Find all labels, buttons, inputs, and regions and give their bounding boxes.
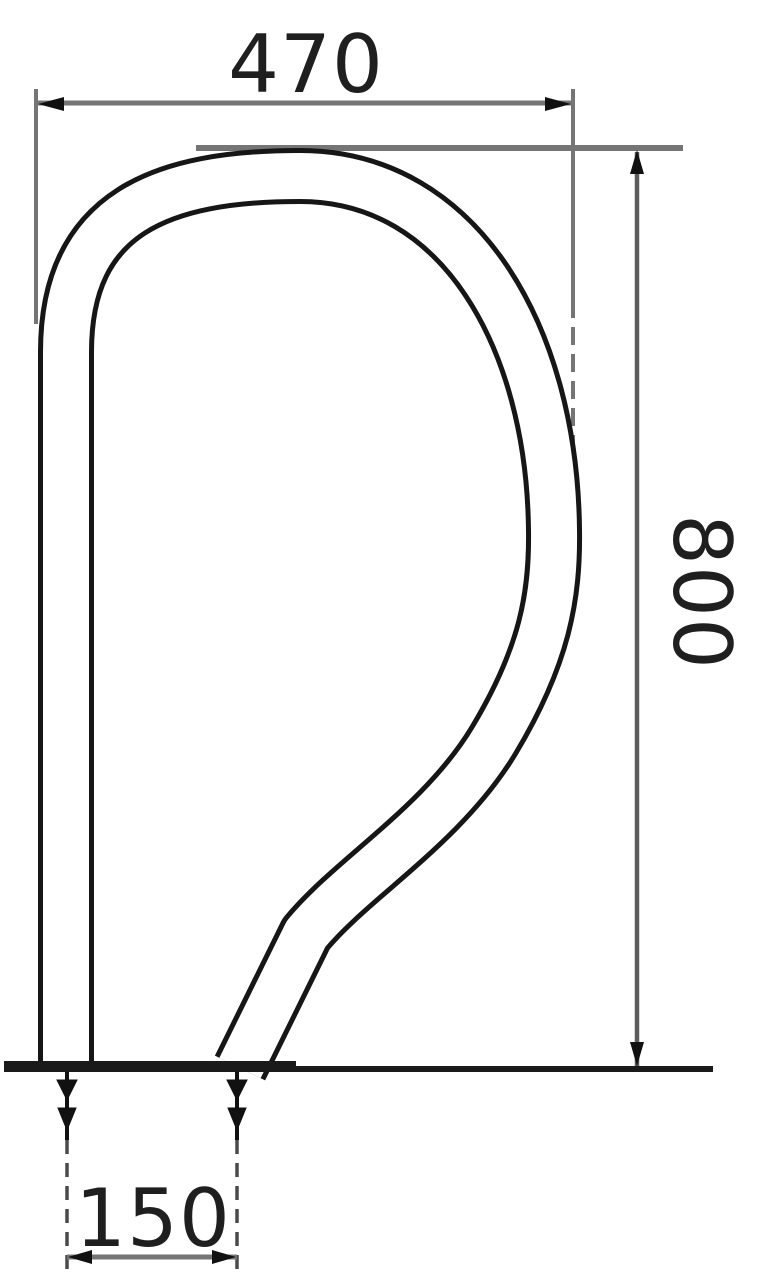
rail-tube <box>66 176 554 1068</box>
width-arrow-left-icon <box>38 97 64 111</box>
anchor-arrow-left-icon <box>57 1072 77 1140</box>
dimension-layer <box>36 89 683 1272</box>
rail-tube-core <box>66 176 554 1068</box>
width-arrow-right-icon <box>545 97 571 111</box>
height-arrow-bottom-icon <box>630 1042 644 1066</box>
anchor-arrow-right-icon <box>227 1072 247 1140</box>
height-dimension-label: 800 <box>655 514 748 670</box>
height-arrow-top-icon <box>630 150 644 174</box>
drawing-canvas: 470 800 150 <box>0 0 758 1280</box>
base-layer <box>4 1066 713 1069</box>
spacing-dimension-label: 150 <box>75 1172 231 1265</box>
grab-rail-diagram: 470 800 150 <box>0 0 758 1280</box>
anchor-arrows <box>57 1072 247 1140</box>
width-dimension-label: 470 <box>228 18 384 111</box>
